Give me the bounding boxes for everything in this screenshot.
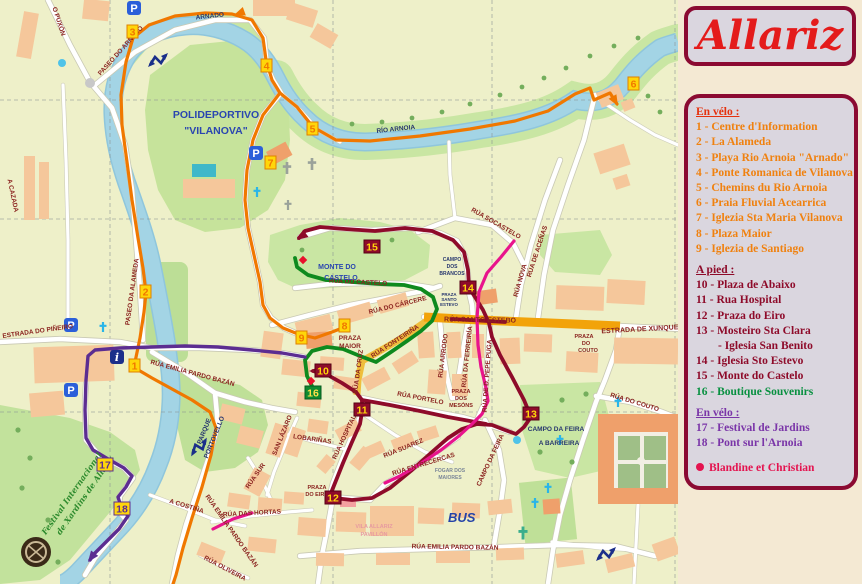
svg-text:1: 1 [132, 361, 138, 373]
svg-text:P: P [130, 3, 137, 15]
svg-text:3: 3 [130, 27, 136, 39]
svg-text:7: 7 [268, 158, 274, 170]
svg-text:14: 14 [462, 283, 474, 295]
marker-7: 7 [265, 156, 276, 170]
svg-text:11: 11 [356, 405, 367, 417]
svg-text:BRANCOS: BRANCOS [439, 271, 465, 277]
svg-text:17: 17 [99, 460, 111, 472]
place-label-pavillon: VILA ALLARIZ [355, 524, 393, 530]
marker-8: 8 [339, 319, 350, 333]
legend-panel: En vélo : 1 - Centre d'Information 2 - L… [684, 94, 858, 490]
legend-heading-pied: A pied : [696, 263, 848, 278]
legend-item: 10 - Plaza de Abaixo [696, 278, 848, 293]
marker-1: 1 [129, 359, 140, 373]
blue-dot-icon [58, 59, 66, 67]
place-label-brancos: CAMPO [443, 257, 462, 263]
legend-item: 17 - Festival de Jardins [696, 421, 848, 436]
page-title: Allariz [697, 16, 843, 56]
legend-item: 8 - Plaza Maior [696, 227, 848, 242]
marker-18: 18 [114, 502, 130, 516]
place-label-fogar: FOGAR DOS [435, 468, 466, 474]
legend-item: 7 - Iglezia Sta Maria Vilanova [696, 211, 848, 226]
svg-text:4: 4 [264, 61, 270, 73]
marker-15: 15 [364, 240, 380, 254]
marker-11: 11 [354, 403, 370, 417]
place-label-praza-do-eiro: PRAZA [308, 485, 327, 491]
svg-text:12: 12 [327, 493, 339, 505]
svg-text:DO: DO [582, 341, 591, 347]
allariz-map-page: P P P P i [0, 0, 862, 584]
legend-item: 12 - Praza do Eiro [696, 309, 848, 324]
legend-item: 18 - Pont sur l'Arnoia [696, 436, 848, 451]
marker-4: 4 [261, 59, 272, 73]
place-label-bus: BUS [448, 510, 476, 525]
svg-text:PAVILLÓN: PAVILLÓN [361, 530, 388, 538]
info-icon: i [110, 350, 124, 364]
legend-item: 2 - La Alameda [696, 135, 848, 150]
legend-item: 14 - Iglesia Sto Estevo [696, 354, 848, 369]
svg-text:MAIOR: MAIOR [339, 343, 361, 350]
place-label-praza-maior: PRAZA [339, 335, 362, 342]
svg-text:i: i [115, 351, 119, 364]
legend-signature: Blandine et Christian [696, 461, 848, 476]
svg-text:16: 16 [307, 388, 319, 400]
legend-item: 9 - Iglezia de Santiago [696, 242, 848, 257]
legend-item: - Iglesia San Benito [696, 339, 848, 354]
place-label-campo-da-feira: CAMPO DA FEIRA [528, 426, 585, 433]
place-label-polideportivo: POLIDEPORTIVO [173, 109, 259, 121]
legend-item: 4 - Ponte Romanica de Vilanova [696, 166, 848, 181]
svg-text:ESTEVO: ESTEVO [440, 302, 458, 307]
marker-3: 3 [127, 25, 138, 39]
legend-heading-velo2: En vélo : [696, 406, 848, 421]
marker-12: 12 [325, 491, 341, 505]
svg-text:A BARREIRA: A BARREIRA [539, 440, 580, 447]
marker-17: 17 [97, 458, 113, 472]
gray-dot-icon [85, 78, 95, 88]
svg-text:"VILANOVA": "VILANOVA" [184, 125, 247, 137]
svg-text:MESÓNS: MESÓNS [449, 401, 473, 409]
celtic-knot-icon [21, 537, 51, 567]
legend-item: 3 - Playa Rio Arnoia "Arnado" [696, 151, 848, 166]
svg-text:MAIORES: MAIORES [438, 475, 462, 481]
legend-item: 6 - Praia Fluvial Acearrica [696, 196, 848, 211]
marker-2: 2 [140, 285, 151, 299]
marker-10: 10 [315, 364, 331, 378]
place-label-praza-dos-mesons: PRAZA [452, 389, 471, 395]
bullet-icon [696, 463, 704, 471]
svg-text:9: 9 [299, 333, 305, 345]
place-label-praza-do-couto: PRAZA [575, 334, 594, 340]
legend-item: 1 - Centre d'Information [696, 120, 848, 135]
marker-13: 13 [523, 407, 539, 421]
svg-text:10: 10 [317, 366, 329, 378]
svg-text:6: 6 [631, 79, 637, 91]
svg-text:18: 18 [116, 504, 128, 516]
legend-item: 11 - Rua Hospital [696, 293, 848, 308]
svg-text:8: 8 [342, 321, 348, 333]
marker-9: 9 [296, 331, 307, 345]
title-panel: Allariz [684, 6, 856, 66]
marker-14: 14 [460, 281, 476, 295]
marker-6: 6 [628, 77, 639, 91]
svg-text:13: 13 [525, 409, 537, 421]
svg-text:DOS: DOS [447, 264, 459, 270]
svg-text:2: 2 [143, 287, 149, 299]
place-label-monte: MONTE DO [318, 264, 356, 271]
svg-text:DOS: DOS [455, 396, 467, 402]
mosteiro-sta-clara [598, 414, 682, 504]
legend-item: 5 - Chemins du Rio Arnoia [696, 181, 848, 196]
marker-16: 16 [305, 386, 321, 400]
svg-text:15: 15 [366, 242, 378, 254]
blue-dot-icon [513, 436, 521, 444]
svg-text:P: P [67, 385, 74, 397]
marker-5: 5 [307, 122, 318, 136]
svg-text:COUTO: COUTO [578, 348, 598, 354]
svg-text:P: P [252, 148, 259, 160]
legend-item: 13 - Mosteiro Sta Clara [696, 324, 848, 339]
legend-item: 15 - Monte do Castelo [696, 369, 848, 384]
svg-text:CASTELO: CASTELO [324, 275, 358, 282]
legend-heading-velo1: En vélo : [696, 105, 848, 120]
svg-text:5: 5 [310, 124, 316, 136]
legend-item: 16 - Boutique Souvenirs [696, 385, 848, 400]
